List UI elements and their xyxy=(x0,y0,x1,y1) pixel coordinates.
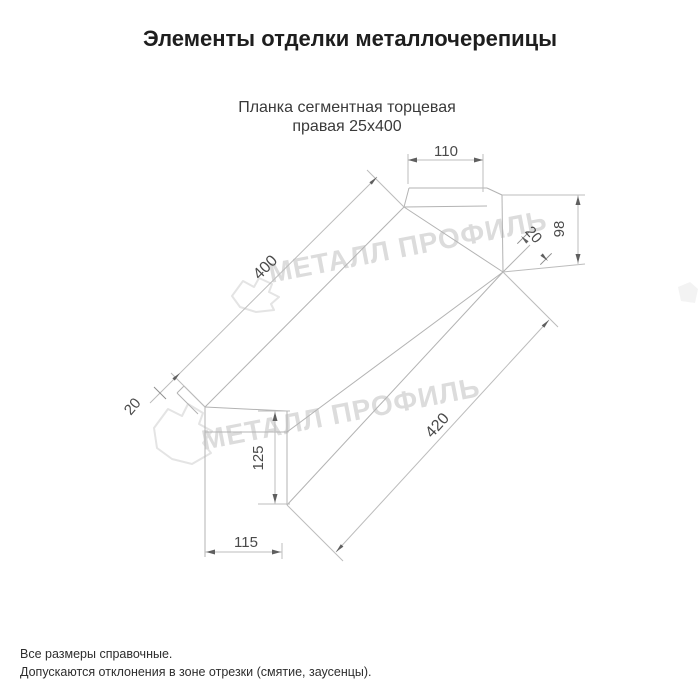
dimension-110-label: 110 xyxy=(434,143,458,160)
drawing-subtitle-line1: Планка сегментная торцевая xyxy=(238,99,456,116)
footer-note-sizes: Все размеры справочные. xyxy=(20,647,172,661)
footer-notes: Все размеры справочные. Допускаются откл… xyxy=(20,647,372,679)
dimension-20-near-label: 20 xyxy=(121,395,145,419)
catalog-drawing-page: Элементы отделки металлочерепицы Планка … xyxy=(0,0,700,700)
technical-drawing-canvas: Элементы отделки металлочерепицы Планка … xyxy=(0,0,700,700)
dimension-bottom-flange-width: 115 xyxy=(205,534,282,559)
footer-note-deviations: Допускаются отклонения в зоне отрезки (с… xyxy=(20,665,372,679)
dimension-98-label: 98 xyxy=(551,221,568,238)
drawing-subtitle-line2: правая 25х400 xyxy=(292,118,401,135)
dimension-115-label: 115 xyxy=(234,534,258,551)
dimension-125-label: 125 xyxy=(250,445,267,470)
dimension-top-flange-width: 110 xyxy=(408,143,483,192)
dimension-top-edge-chain: 20 400 xyxy=(121,170,404,419)
metall-profil-cloud-logo xyxy=(678,282,698,303)
page-title: Элементы отделки металлочерепицы xyxy=(143,26,557,51)
dimension-420-label: 420 xyxy=(422,410,453,441)
